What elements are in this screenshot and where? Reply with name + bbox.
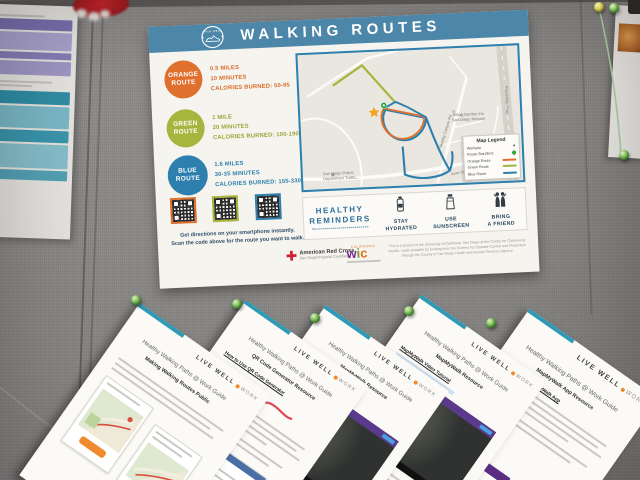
push-pin	[486, 318, 496, 328]
purple-bar-chart	[0, 18, 73, 77]
healthy-reminders-panel: HEALTHY REMINDERS STAYHYDRATED USESUN	[302, 187, 528, 240]
santa-hat-fuzz	[100, 10, 110, 18]
qr-code-orange-route	[170, 197, 197, 224]
legend-blue-line	[503, 171, 517, 173]
blue-route-stats: 1.6 MILES 30-35 MINUTES CALORIES BURNED:…	[214, 157, 305, 191]
blue-route-badge: BLUE ROUTE	[167, 154, 209, 196]
push-pin	[609, 3, 619, 13]
teal-bar-chart	[0, 90, 70, 182]
small-photo-thumbnail	[618, 23, 640, 52]
reminder-hydrate: STAYHYDRATED	[375, 195, 427, 234]
letterhead-stripe	[527, 309, 574, 344]
qr-caption: Get directions on your smartphone instan…	[167, 226, 308, 249]
push-pin	[131, 295, 141, 305]
push-pin	[619, 150, 629, 160]
green-route-badge: GREEN ROUTE	[166, 109, 206, 149]
orange-route-stats: 0.5 MILES 10 MINUTES CALORIES BURNED: 50…	[210, 61, 301, 95]
worksite-star-icon	[368, 107, 379, 118]
map-label-police: San Diego Police Department Traffic...	[323, 170, 360, 182]
sunscreen-icon	[444, 193, 457, 211]
red-cross-logo: American Red Cross San Diego/Imperial Co…	[286, 248, 354, 261]
route-map: Hilton Garden Inn San Diego Mission San …	[295, 43, 525, 192]
qr-code-blue-route	[255, 193, 282, 220]
two-friends-icon	[492, 191, 509, 209]
wic-logo: CALIFORNIA wic	[346, 244, 381, 264]
reminders-title: HEALTHY REMINDERS	[303, 203, 376, 230]
neighbor-paper-edge	[608, 5, 640, 159]
santa-hat-fuzz	[76, 9, 87, 18]
push-pin	[232, 299, 242, 309]
bulletin-board-photo: WALK WELL WALKING ROUTES ORANGE ROUTE 0.…	[0, 0, 640, 480]
badge-text: ROUTE	[176, 175, 201, 184]
reminder-sunscreen: USESUNSCREEN	[425, 193, 477, 232]
reminder-friend: BRINGA FRIEND	[475, 190, 527, 229]
orange-route-badge: ORANGE ROUTE	[164, 60, 204, 100]
poster-disclaimer: This is a project of the University of C…	[388, 238, 527, 259]
walking-routes-poster: WALK WELL WALKING ROUTES ORANGE ROUTE 0.…	[148, 10, 539, 289]
walk-well-shoe-icon: WALK WELL	[200, 25, 225, 50]
water-bottle-icon	[394, 196, 407, 214]
qr-code-green-route	[212, 195, 239, 222]
dark-object-corner	[628, 0, 640, 14]
santa-hat-fuzz	[88, 12, 100, 21]
legend-orange-line	[502, 158, 516, 160]
legend-star-icon: ★	[512, 144, 515, 148]
green-route-stats: 1 MILE 20 MINUTES CALORIES BURNED: 100-1…	[212, 110, 303, 144]
legend-pin-icon	[511, 150, 517, 156]
push-pin	[404, 306, 414, 316]
push-pin	[594, 2, 604, 12]
wic-wordmark: wic	[346, 248, 380, 260]
survey-chart-handout	[0, 3, 78, 239]
push-pin	[310, 313, 320, 323]
red-cross-icon	[286, 251, 296, 261]
poster-title: WALKING ROUTES	[240, 18, 441, 44]
map-legend: Map Legend Worksite★ Route Start/End Ora…	[462, 133, 521, 181]
svg-text:WALK WELL: WALK WELL	[203, 29, 222, 34]
badge-text: ROUTE	[171, 79, 196, 88]
legend-green-line	[503, 165, 517, 167]
panel-seam	[579, 0, 592, 315]
badge-text: ROUTE	[174, 128, 199, 137]
